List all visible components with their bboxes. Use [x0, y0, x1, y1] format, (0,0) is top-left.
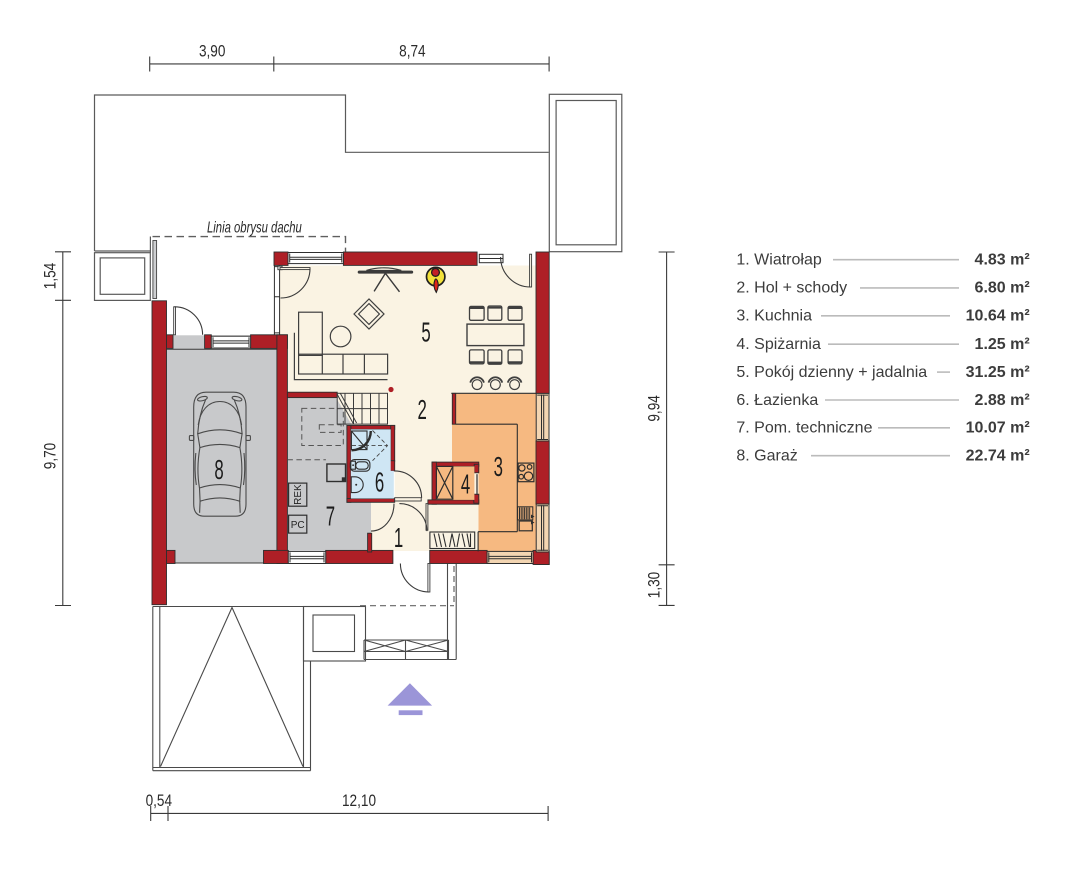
svg-text:7. Pom. techniczne: 7. Pom. techniczne	[736, 420, 872, 437]
svg-text:REK: REK	[293, 484, 304, 505]
svg-text:8. Garaż: 8. Garaż	[736, 448, 797, 465]
svg-text:31.25 m²: 31.25 m²	[966, 364, 1030, 381]
svg-text:9,94: 9,94	[645, 395, 664, 422]
svg-text:10.64 m²: 10.64 m²	[966, 308, 1030, 325]
svg-text:2: 2	[418, 393, 427, 425]
svg-text:4.83 m²: 4.83 m²	[975, 252, 1030, 269]
svg-text:5: 5	[421, 316, 430, 348]
svg-text:3,90: 3,90	[199, 42, 225, 61]
svg-text:10.07 m²: 10.07 m²	[966, 420, 1030, 437]
svg-text:12,10: 12,10	[342, 792, 376, 811]
svg-text:1: 1	[394, 521, 403, 553]
svg-text:1. Wiatrołap: 1. Wiatrołap	[736, 252, 821, 269]
svg-text:Linia obrysu dachu: Linia obrysu dachu	[207, 219, 302, 236]
svg-text:6.80 m²: 6.80 m²	[975, 280, 1030, 297]
svg-text:6: 6	[375, 466, 384, 498]
svg-text:1.25 m²: 1.25 m²	[975, 336, 1030, 353]
svg-text:1,54: 1,54	[41, 262, 60, 289]
svg-text:3: 3	[494, 451, 503, 483]
svg-text:PC: PC	[291, 520, 305, 531]
svg-text:2. Hol + schody: 2. Hol + schody	[736, 280, 847, 297]
svg-text:9,70: 9,70	[41, 443, 60, 469]
svg-text:8: 8	[214, 454, 223, 486]
svg-text:2.88 m²: 2.88 m²	[975, 392, 1030, 409]
svg-text:1,30: 1,30	[645, 572, 664, 598]
svg-text:3. Kuchnia: 3. Kuchnia	[736, 308, 812, 325]
svg-text:22.74 m²: 22.74 m²	[966, 448, 1030, 465]
svg-text:7: 7	[326, 500, 335, 532]
svg-text:6. Łazienka: 6. Łazienka	[736, 392, 818, 409]
svg-text:4. Spiżarnia: 4. Spiżarnia	[736, 336, 821, 353]
svg-text:5. Pokój dzienny + jadalnia: 5. Pokój dzienny + jadalnia	[736, 364, 927, 381]
svg-text:4: 4	[461, 468, 470, 500]
svg-text:0,54: 0,54	[146, 792, 173, 811]
svg-text:8,74: 8,74	[399, 42, 426, 61]
